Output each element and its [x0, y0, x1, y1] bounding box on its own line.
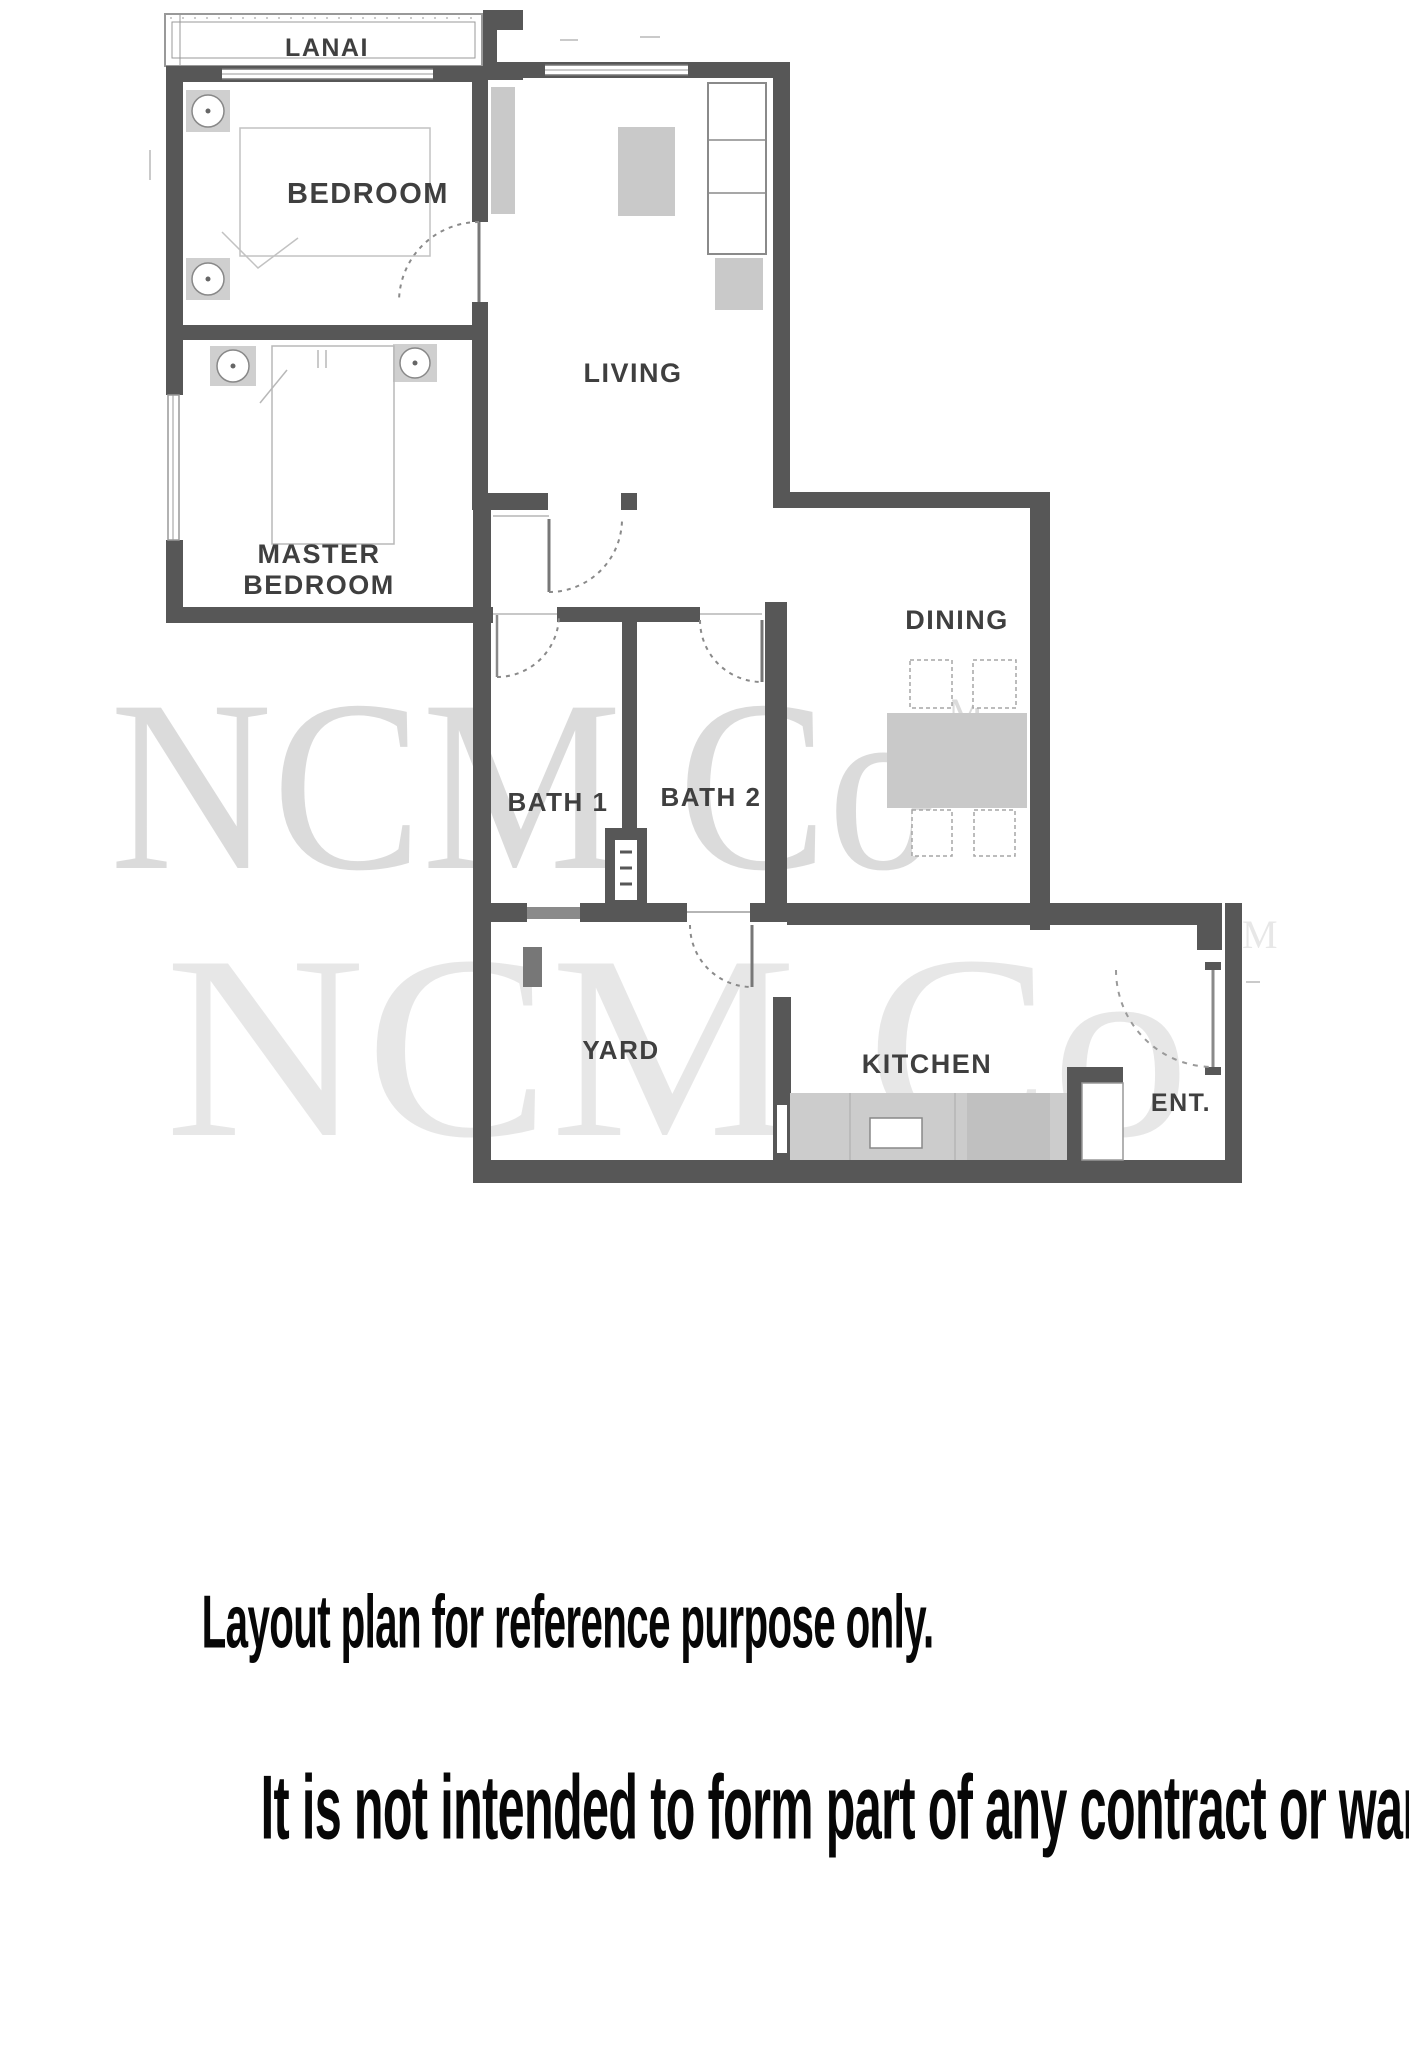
- label-bath1: BATH 1: [508, 787, 609, 817]
- coffee-table: [618, 127, 675, 216]
- label-bedroom: BEDROOM: [287, 178, 449, 210]
- disclaimer-line1: Layout plan for reference purpose only.: [202, 1578, 889, 1665]
- label-yard: YARD: [582, 1035, 659, 1065]
- fridge-space: [1082, 1083, 1123, 1160]
- watermark: NCM Co M: [110, 650, 984, 921]
- door-bedroom: [399, 222, 479, 302]
- disclaimer-line2: It is not intended to form part of any c…: [261, 1756, 1149, 1861]
- bed-master: [260, 346, 394, 544]
- watermark-text-row1: NCM Co: [110, 650, 940, 921]
- label-living: LIVING: [583, 358, 682, 388]
- ceiling-fixture-icon: [393, 344, 437, 382]
- ceiling-fixture-icon: [186, 90, 230, 132]
- label-master-bedroom-line1: MASTER: [258, 539, 381, 569]
- tv-console: [491, 87, 515, 214]
- dining-table: [887, 713, 1027, 808]
- label-dining: DINING: [905, 605, 1009, 635]
- scanned-floor-plan-page: NCM Co M NCM Co M: [0, 0, 1409, 2048]
- floor-plan: NCM Co M NCM Co M: [0, 0, 1409, 1500]
- label-bath2: BATH 2: [661, 782, 762, 812]
- sofa: [708, 83, 766, 254]
- window-symbols: [168, 65, 688, 540]
- ceiling-fixture-icon: [210, 346, 256, 386]
- label-master-bedroom-line2: BEDROOM: [243, 570, 395, 600]
- door-master-bedroom: [493, 516, 622, 592]
- kitchen-counter: [790, 1093, 1067, 1160]
- watermark-tm-icon: M: [1242, 912, 1278, 957]
- water-heater: [523, 947, 542, 987]
- kitchen-sink: [870, 1118, 922, 1148]
- label-lanai: LANAI: [285, 34, 369, 62]
- side-table: [715, 258, 763, 310]
- label-entrance: ENT.: [1151, 1089, 1211, 1117]
- label-kitchen: KITCHEN: [862, 1049, 993, 1079]
- ceiling-fixture-icon: [186, 258, 230, 300]
